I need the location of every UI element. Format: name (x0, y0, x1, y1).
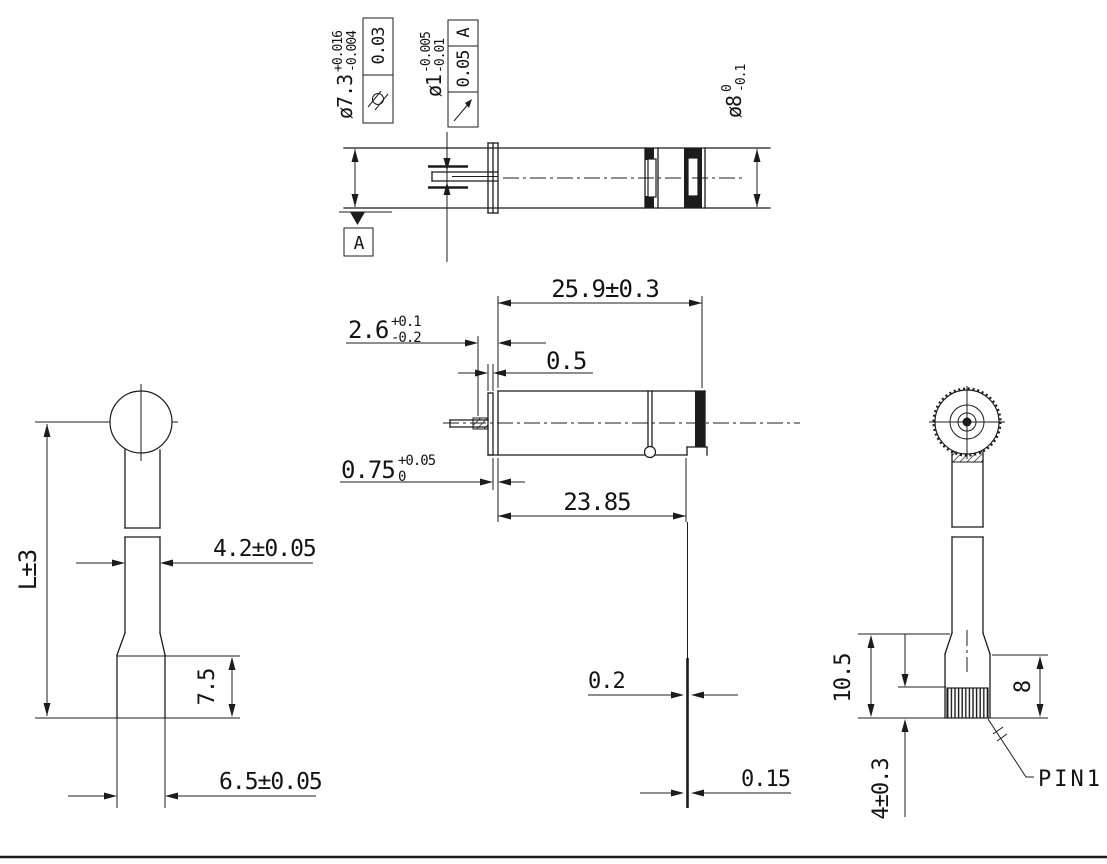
pin1-callout: PIN1 (988, 719, 1103, 792)
circular-runout-icon (454, 99, 472, 121)
dimension-case-length: 23.85 (498, 458, 686, 522)
datum-a-label: A (354, 233, 365, 254)
datum-a: A (339, 212, 392, 256)
dimension-total-length: 25.9±0.3 (498, 275, 702, 388)
pin1-label: PIN1 (1038, 767, 1103, 792)
dimension-washer: 0.75 +0.05 0 (340, 453, 525, 522)
total-length-text: 25.9±0.3 (551, 275, 659, 303)
case-length-text: 23.85 (563, 488, 630, 516)
shaft-diameter-label: ø1 (422, 75, 446, 97)
dimension-pin-zone: 8 (1011, 656, 1044, 717)
shaft-diameter-lower-tol: -0.01 (433, 39, 448, 73)
dimension-end-diameter: ø8 0 -0.1 (720, 65, 761, 207)
dimension-overall-length: L±3 (14, 424, 51, 716)
front-view: L±3 4.2±0.05 7.5 6.5±0.05 (14, 384, 322, 808)
pin-length-text: 4±0.3 (869, 758, 894, 819)
stem-width-text: 4.2±0.05 (213, 536, 316, 562)
dimension-bracket-height: 10.5 (831, 635, 875, 717)
dimension-pin-length: 4±0.3 (869, 634, 909, 820)
end-diameter-upper-tol: 0 (720, 85, 735, 92)
body-diameter-upper-tol: +0.016 (331, 31, 346, 72)
dimension-body-diameter: ø7.3 +0.016 -0.004 (331, 30, 360, 207)
washer-lower-tol: 0 (398, 469, 406, 485)
main-side-view: 25.9±0.3 2.6 +0.1 -0.2 0.5 (340, 275, 800, 808)
dimension-terminal-a: 0.2 (588, 669, 738, 699)
datum-triangle-icon (350, 212, 365, 225)
end-diameter-lower-tol: -0.1 (734, 65, 749, 92)
fcf-runout-value: 0.05 (454, 51, 474, 88)
flange-gap-text: 0.5 (546, 347, 586, 375)
body-diameter-lower-tol: -0.004 (345, 30, 360, 72)
knurled-head (929, 386, 1005, 459)
base-width-text: 6.5±0.05 (219, 769, 322, 795)
fcf-runout-datum: A (454, 28, 474, 38)
base-height-text: 7.5 (195, 669, 220, 706)
dimension-base-height: 7.5 (195, 657, 236, 717)
terminal-a-text: 0.2 (588, 669, 625, 694)
shaft-extension-text: 2.6 (348, 316, 388, 344)
shaft-diameter-upper-tol: -0.005 (419, 32, 434, 73)
terminal-b-text: 0.15 (741, 767, 790, 792)
terminal-edge-view: 0.2 0.15 (588, 522, 791, 808)
bracket-height-text: 10.5 (831, 654, 856, 703)
shaft-extension-upper-tol: +0.1 (391, 314, 421, 330)
fcf-runout: 0.05 A (448, 20, 478, 127)
pin-zone-text: 8 (1011, 681, 1036, 693)
dimension-terminal-b: 0.15 (640, 767, 791, 797)
dimension-shaft-diameter: ø1 -0.005 -0.01 (419, 32, 451, 262)
pin-contact-zone (947, 688, 988, 718)
shaft-extension-lower-tol: -0.2 (391, 330, 421, 346)
fcf-cylindricity: 0.03 (363, 18, 393, 123)
end-view: 10.5 4±0.3 8 PIN1 (831, 386, 1103, 820)
dimension-base-width: 6.5±0.05 (68, 769, 322, 800)
dimension-stem-width: 4.2±0.05 (76, 536, 316, 567)
drawing-sheet: ø7.3 +0.016 -0.004 0.03 ø1 -0.005 -0.01 (0, 0, 1107, 864)
technical-drawing: ø7.3 +0.016 -0.004 0.03 ø1 -0.005 -0.01 (0, 0, 1107, 864)
body-diameter-label: ø7.3 (333, 75, 357, 119)
top-side-view: ø7.3 +0.016 -0.004 0.03 ø1 -0.005 -0.01 (331, 18, 770, 262)
overall-length-text: L±3 (14, 550, 42, 590)
dimension-shaft-extension: 2.6 +0.1 -0.2 (346, 314, 546, 416)
washer-text: 0.75 (341, 456, 395, 484)
end-diameter-label: ø8 (722, 96, 746, 118)
cylindricity-icon (368, 91, 388, 110)
fcf-cylindricity-value: 0.03 (369, 28, 389, 65)
washer-upper-tol: +0.05 (398, 453, 436, 469)
